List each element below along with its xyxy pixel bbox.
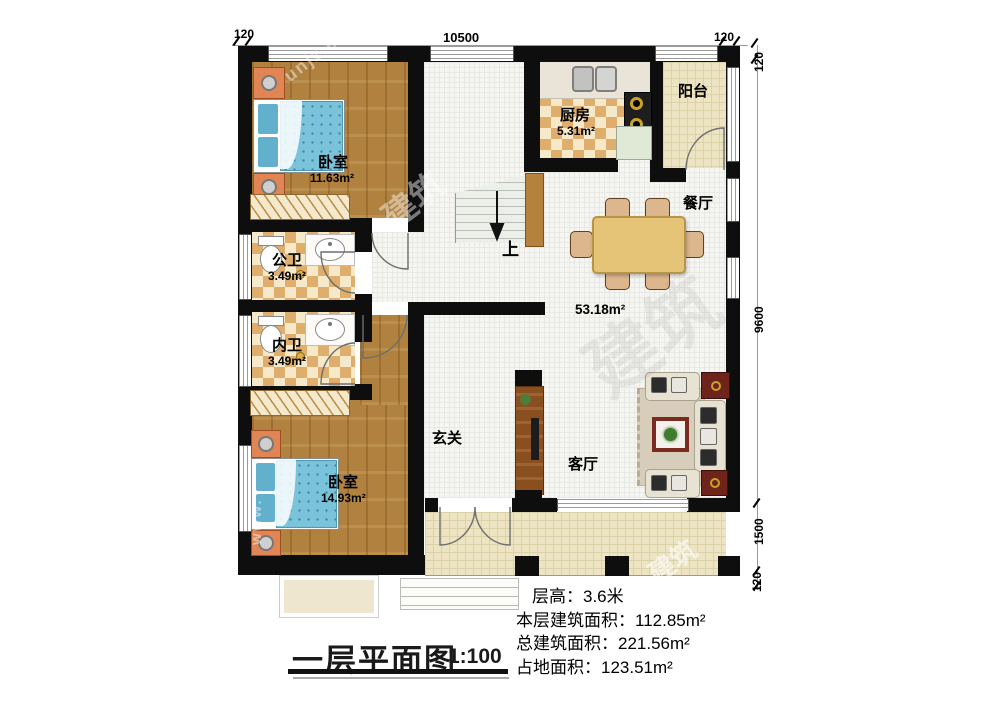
- footer-stats: 层高：3.6米 本层建筑面积：112.85m² 总建筑面积：221.56m² 占…: [516, 585, 706, 679]
- dining-chair-3: [570, 231, 593, 258]
- dim-right-corner: 120: [752, 52, 766, 72]
- sofa-bottom-cushion: [651, 475, 667, 491]
- kitchen-area: 5.31m²: [557, 124, 595, 138]
- bedroom2-wardrobe: [250, 390, 350, 416]
- entry-steps: [400, 578, 519, 610]
- sink-basin-public: [315, 238, 345, 261]
- living-label: 客厅: [568, 457, 598, 473]
- sink-basin-private: [315, 318, 345, 341]
- plan-scale: 1:100: [448, 645, 502, 669]
- sofa-top-cushion-2: [671, 377, 687, 393]
- balcony-floor: [663, 62, 726, 168]
- bedroom2-label: 卧室: [328, 475, 358, 491]
- wall-entry-pillar-left: [425, 498, 438, 512]
- dining-table: [592, 216, 686, 274]
- coffee-table-plant: [664, 428, 677, 441]
- bedroom1-pillow-1: [257, 103, 279, 135]
- side-terrace: [280, 576, 378, 617]
- bedroom2-nightstand-bottom: [251, 530, 281, 556]
- stove-burner-1: [630, 97, 643, 110]
- floor-plan-canvas: 上: [0, 0, 1000, 706]
- wall-balcony-bottom: [650, 168, 686, 182]
- bedroom2-nightstand-top: [251, 430, 281, 458]
- tv-plant: [520, 394, 531, 405]
- stat-floor-area: 本层建筑面积：112.85m²: [516, 609, 706, 633]
- tv-screen: [531, 418, 539, 460]
- stairs-rail: [525, 173, 544, 247]
- title-underline-thin: [293, 677, 509, 679]
- sofa-right-cushion: [700, 407, 717, 424]
- kitchen-sink-left: [572, 66, 594, 92]
- bedroom1-area: 11.63m²: [310, 171, 354, 185]
- wall-bedroom1-bottom: [238, 218, 372, 232]
- sofa-right-cushion-3: [700, 449, 717, 466]
- dim-top-left: 120: [234, 27, 254, 41]
- porch-pillar-corner: [718, 556, 740, 576]
- dim-top-right: 120: [714, 30, 734, 44]
- dim-line-top: [232, 45, 748, 46]
- bedroom1-wardrobe: [250, 194, 350, 220]
- dim-right-main: 9600: [752, 306, 766, 333]
- sofa-right-cushion-2: [700, 428, 717, 445]
- kitchen-label: 厨房: [560, 108, 590, 124]
- porch-pillar-2: [605, 556, 629, 576]
- wall-bedroom2-right: [408, 302, 424, 555]
- window-bedroom2-left: [239, 445, 251, 532]
- balcony-label: 阳台: [678, 84, 708, 100]
- wall-bedroom1-right: [408, 62, 424, 232]
- side-table-bottom: [701, 470, 728, 496]
- wall-bottom-bedroom2: [238, 555, 425, 575]
- open-area-label: 53.18m²: [575, 302, 625, 317]
- bath-public-area: 3.49m²: [268, 269, 306, 283]
- dim-top-span: 10500: [443, 30, 479, 45]
- wall-corridor-foyer: [424, 302, 545, 315]
- wall-living-bottom-b: [687, 498, 740, 512]
- stat-total-area: 总建筑面积：221.56m²: [516, 632, 706, 656]
- window-dining-right-a: [727, 178, 739, 222]
- bedroom1-pillow-2: [257, 136, 279, 168]
- bath-private-area: 3.49m²: [268, 354, 306, 368]
- kitchen-fridge: [616, 126, 652, 160]
- kitchen-sink-right: [595, 66, 617, 92]
- foyer-label: 玄关: [432, 431, 462, 447]
- dim-right-porch: 1500: [752, 518, 766, 545]
- porch-floor: [425, 512, 726, 576]
- dim-right-bottom: 120: [750, 572, 764, 592]
- bedroom1-label: 卧室: [318, 155, 348, 171]
- dining-label: 餐厅: [683, 196, 713, 212]
- bedroom2-pillow-2: [255, 493, 276, 523]
- stairs-up-label: 上: [502, 241, 519, 259]
- sofa-top-cushion: [651, 377, 667, 393]
- window-bath-private-left: [239, 315, 251, 387]
- bedroom2-area: 14.93m²: [321, 491, 366, 505]
- porch-pillar-1: [515, 556, 539, 576]
- wall-between-baths: [238, 300, 372, 312]
- window-balcony-right: [727, 67, 739, 162]
- window-bedroom1-top: [268, 46, 388, 61]
- window-dining-right-b: [727, 257, 739, 299]
- side-table-top: [701, 372, 730, 399]
- bath-private-label: 内卫: [272, 338, 302, 354]
- tv-wall-stub-top: [515, 370, 542, 386]
- window-bath-public-left: [239, 234, 251, 300]
- stat-footprint-area: 占地面积：123.51m²: [516, 656, 706, 680]
- window-balcony-top: [655, 46, 718, 61]
- tv-wall-stub-bottom: [515, 490, 542, 512]
- sofa-bottom-cushion-2: [671, 475, 687, 491]
- title-underline-thick: [288, 669, 508, 674]
- stat-floor-height: 层高：3.6米: [532, 585, 706, 609]
- window-corridor-top: [430, 46, 514, 61]
- bath-public-label: 公卫: [272, 253, 302, 269]
- bedroom1-nightstand-top: [253, 67, 285, 99]
- window-living-bottom: [557, 499, 689, 511]
- wall-bath-right-a: [355, 218, 372, 252]
- wall-kitchen-bottom: [524, 158, 618, 172]
- corridor-floor-patch: [372, 232, 424, 302]
- bedroom2-pillow-1: [255, 462, 276, 492]
- wall-kitchen-left: [524, 62, 540, 172]
